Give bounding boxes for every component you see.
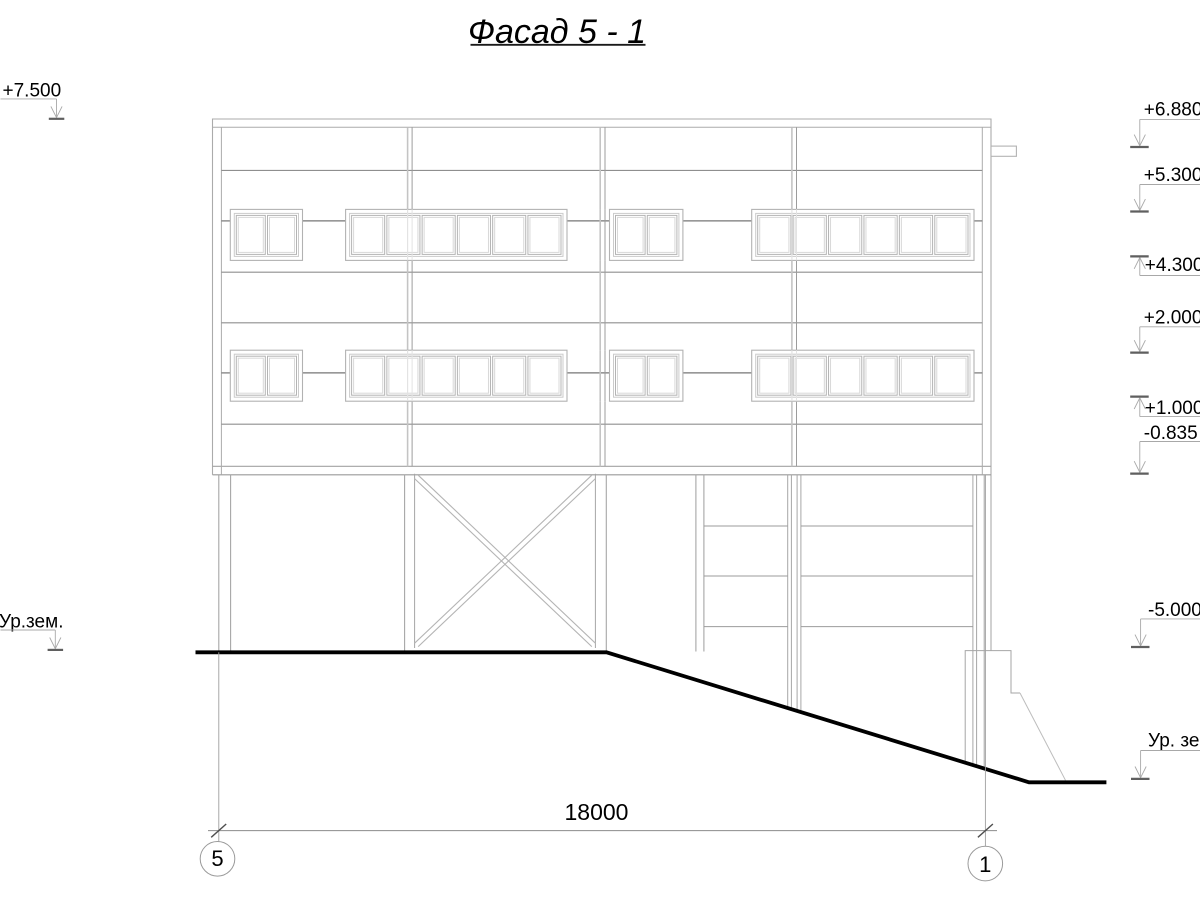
svg-text:18000: 18000	[565, 799, 629, 825]
svg-text:-5.000: -5.000	[1148, 600, 1200, 621]
svg-text:-0.835: -0.835	[1144, 423, 1198, 444]
svg-text:+6.880: +6.880	[1144, 99, 1200, 120]
svg-text:+1.000: +1.000	[1145, 398, 1200, 419]
svg-text:Ур.зем.: Ур.зем.	[0, 612, 63, 633]
svg-text:+4.300: +4.300	[1145, 255, 1200, 276]
svg-text:Ур. зем.: Ур. зем.	[1148, 730, 1200, 751]
svg-text:+2.000: +2.000	[1144, 308, 1200, 329]
svg-text:+5.300: +5.300	[1144, 165, 1200, 186]
svg-text:1: 1	[979, 852, 991, 877]
svg-text:5: 5	[211, 846, 223, 871]
svg-text:+7.500: +7.500	[3, 81, 62, 102]
